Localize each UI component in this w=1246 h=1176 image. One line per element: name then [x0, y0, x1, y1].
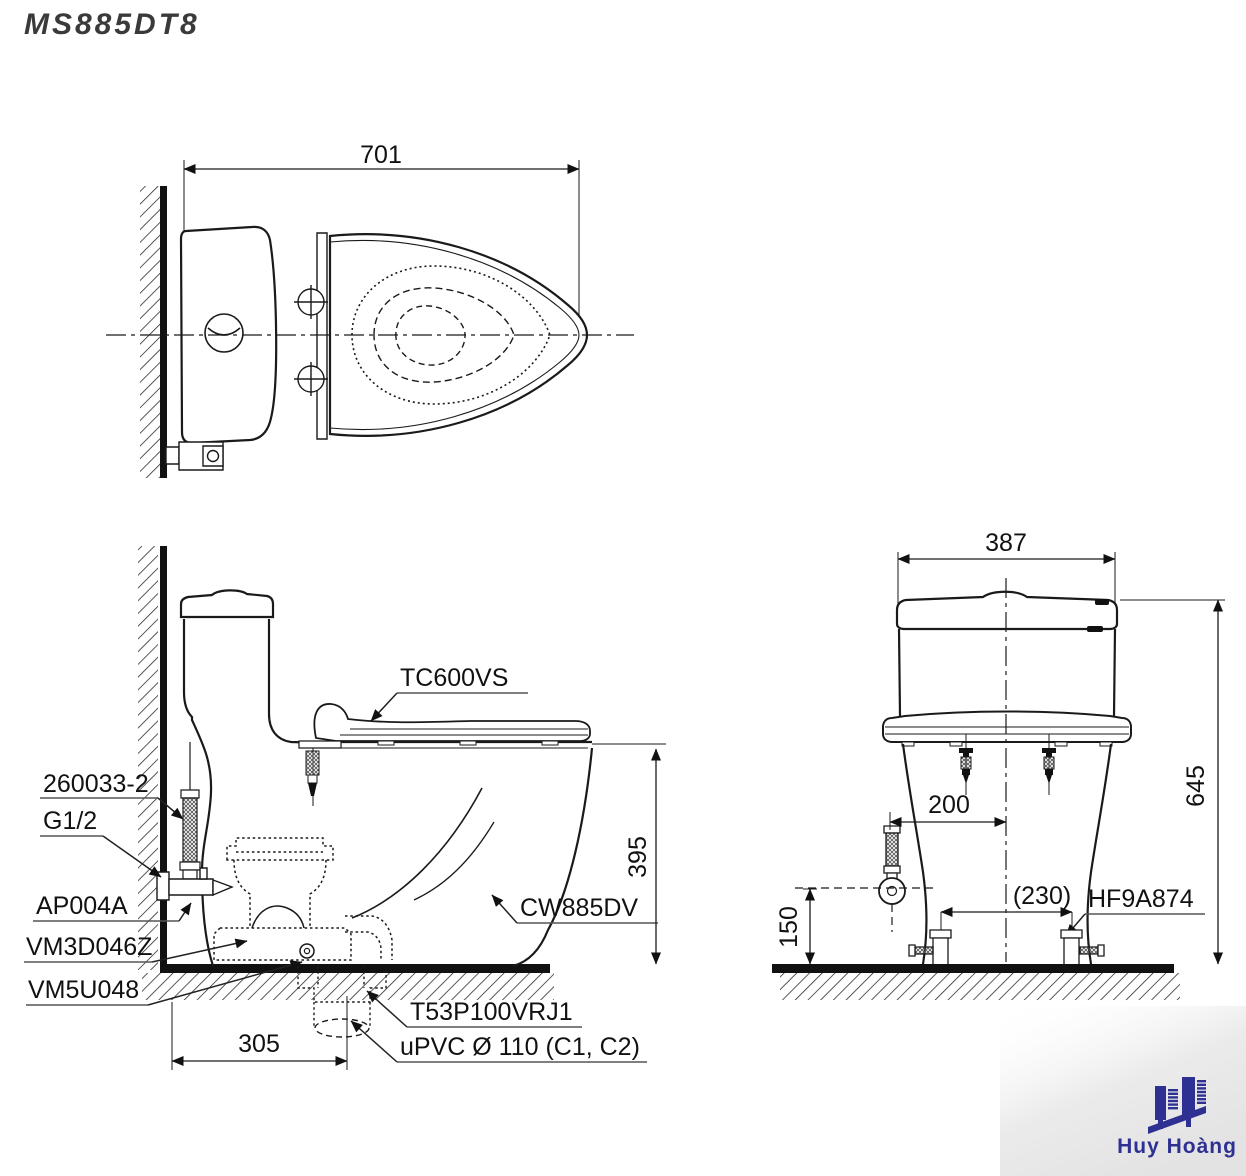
technical-drawing: 701	[0, 0, 1246, 1176]
dim-rim-height-395: 395	[624, 749, 656, 964]
label-fitting: VM3D046Z	[26, 933, 152, 961]
dim-bolt-spacing-value: (230)	[1013, 882, 1071, 910]
dim-total-height-value: 645	[1182, 765, 1210, 807]
dim-supply-offset-value: 200	[928, 791, 970, 819]
seat-bolts-front	[959, 734, 1056, 795]
model-title: MS885DT8	[24, 8, 200, 42]
top-view: 701	[106, 141, 634, 478]
front-view: 387	[772, 529, 1225, 1000]
label-gasket: VM5U048	[28, 976, 139, 1004]
dim-rim-height-value: 395	[624, 836, 652, 878]
floor-section-side	[142, 964, 554, 1000]
dim-depth-value: 701	[360, 141, 402, 169]
dim-rough-in-value: 305	[238, 1030, 280, 1058]
seat-bolt-side	[306, 748, 319, 806]
brand-logo: Huy Hoàng	[1000, 1006, 1246, 1176]
brand-mark	[1087, 626, 1103, 632]
label-hose: 260033-2	[43, 770, 149, 798]
dim-width-value: 387	[985, 529, 1027, 557]
dim-supply-height-150: 150	[775, 889, 817, 964]
tank-front	[897, 592, 1117, 716]
dim-supply-height-value: 150	[775, 906, 803, 948]
bowl-interior-curves	[252, 788, 494, 958]
label-seat: TC600VS	[400, 664, 508, 692]
supply-front	[795, 826, 937, 932]
supply-hose-side	[180, 742, 200, 879]
supply-valve-top	[166, 442, 223, 470]
wall-section-side	[138, 546, 167, 970]
drawing-page: MS885DT8	[0, 0, 1246, 1176]
label-bolt-cap: HF9A874	[1088, 885, 1194, 913]
wall-section-top	[140, 186, 167, 478]
label-connector: T53P100VRJ1	[410, 998, 573, 1026]
dim-supply-offset-200: 200	[890, 791, 1006, 830]
logo-text: Huy Hoàng	[1117, 1135, 1237, 1158]
label-thread: G1/2	[43, 807, 97, 835]
label-pipe: uPVC Ø 110 (C1, C2)	[400, 1033, 640, 1061]
seat-hinge-top	[294, 233, 328, 439]
flush-button-mark	[1095, 599, 1109, 605]
seat-side-profile	[299, 704, 590, 806]
label-stop-valve: AP004A	[36, 892, 128, 920]
floor-section-front	[772, 964, 1180, 1000]
label-bowl: CW885DV	[520, 894, 638, 922]
seat-front	[883, 712, 1131, 747]
side-view: 260033-2 G1/2 AP004A VM3D046Z VM5U048 TC…	[24, 546, 666, 1070]
